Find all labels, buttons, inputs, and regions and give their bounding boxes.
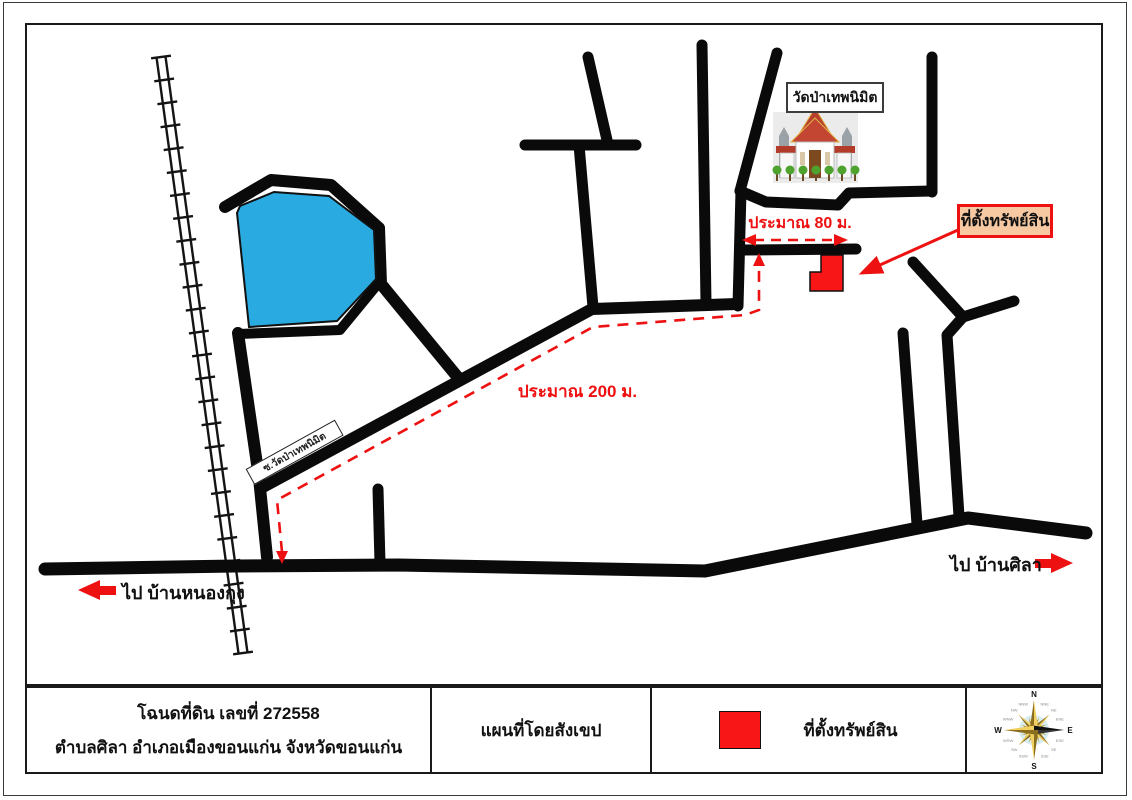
svg-text:SSE: SSE: [1041, 753, 1049, 758]
legend-label-text: ที่ตั้งทรัพย์สิน: [803, 717, 897, 744]
svg-text:N: N: [1031, 690, 1037, 699]
map-type-text: แผนที่โดยสังเขป: [481, 717, 602, 744]
svg-text:WSW: WSW: [1003, 738, 1013, 743]
distance-200m-label: ประมาณ 200 ม.: [505, 378, 650, 405]
svg-text:E: E: [1067, 726, 1073, 735]
center-vertical-road: [702, 45, 706, 303]
svg-text:ENE: ENE: [1056, 717, 1065, 722]
temple-illustration: [773, 106, 860, 183]
compass-cell: NESWNNENEENEESESESSESSWSWWSWWNWNWNNW: [967, 688, 1101, 772]
map-type-cell: แผนที่โดยสังเขป: [432, 688, 652, 772]
left-vertical-road: [238, 333, 267, 557]
svg-text:SW: SW: [1011, 747, 1018, 752]
main-road: [45, 518, 1086, 571]
direction-label-bansila: ไป บ้านศิลา: [950, 550, 1042, 579]
title-block: โฉนดที่ดิน เลขที่ 272558 ตำบลศิลา อำเภอเ…: [25, 686, 1103, 774]
svg-text:S: S: [1031, 762, 1037, 771]
svg-text:NNE: NNE: [1040, 702, 1049, 707]
temple-front-road: [740, 191, 931, 205]
svg-text:SE: SE: [1051, 747, 1057, 752]
sketch-map-page: วัดป่าเทพนิมิต ที่ตั้งทรัพย์สิน ประมาณ 8…: [0, 0, 1132, 800]
short-stub-road: [378, 489, 380, 563]
temple-west-slant-road: [740, 53, 777, 191]
property-location-callout: ที่ตั้งทรัพย์สิน: [957, 204, 1053, 238]
arrow-left-icon: [78, 580, 116, 600]
right-vertical-road-b: [947, 317, 963, 516]
direction-label-nongkung: ไป บ้านหนองกุง: [122, 578, 245, 607]
legend-cell: ที่ตั้งทรัพย์สิน: [652, 688, 967, 772]
svg-text:W: W: [994, 726, 1002, 735]
property-lane-80m: [743, 249, 856, 250]
property-location-text: ที่ตั้งทรัพย์สิน: [961, 209, 1050, 234]
svg-text:SSW: SSW: [1019, 753, 1028, 758]
property-marker: [810, 255, 843, 291]
legend-marker-swatch: [719, 711, 761, 749]
right-branch-road: [963, 301, 1014, 317]
right-diagonal-road: [913, 262, 963, 317]
svg-text:WNW: WNW: [1003, 717, 1014, 722]
north-road-upper: [588, 57, 607, 140]
svg-text:NW: NW: [1011, 708, 1018, 713]
right-vertical-road-a: [903, 333, 917, 524]
svg-text:NE: NE: [1051, 708, 1057, 713]
svg-text:NNW: NNW: [1019, 702, 1029, 707]
temple-name-label: วัดป่าเทพนิมิต: [786, 82, 884, 113]
deed-info-cell: โฉนดที่ดิน เลขที่ 272558 ตำบลศิลา อำเภอเ…: [27, 688, 432, 772]
north-road-lower: [579, 145, 593, 307]
svg-text:ESE: ESE: [1056, 738, 1064, 743]
distance-80m-label: ประมาณ 80 ม.: [742, 211, 858, 236]
deed-location: ตำบลศิลา อำเภอเมืองขอนแก่น จังหวัดขอนแก่…: [55, 734, 402, 761]
deed-number: โฉนดที่ดิน เลขที่ 272558: [137, 700, 319, 727]
compass-rose-icon: NESWNNENEENEESESESSESSWSWWSWWNWNWNNW: [992, 688, 1076, 772]
temple-name-text: วัดป่าเทพนิมิต: [793, 87, 878, 109]
